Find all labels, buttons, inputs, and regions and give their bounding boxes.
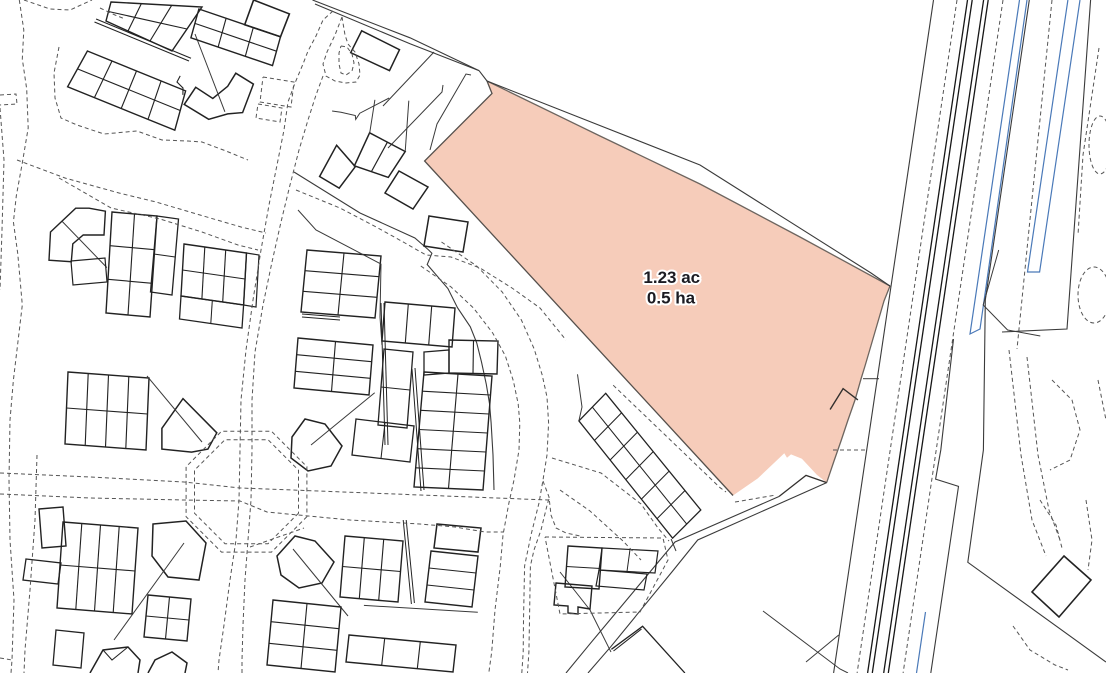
- svg-text:1.23 ac: 1.23 ac: [643, 268, 700, 287]
- svg-text:0.5 ha: 0.5 ha: [647, 289, 696, 308]
